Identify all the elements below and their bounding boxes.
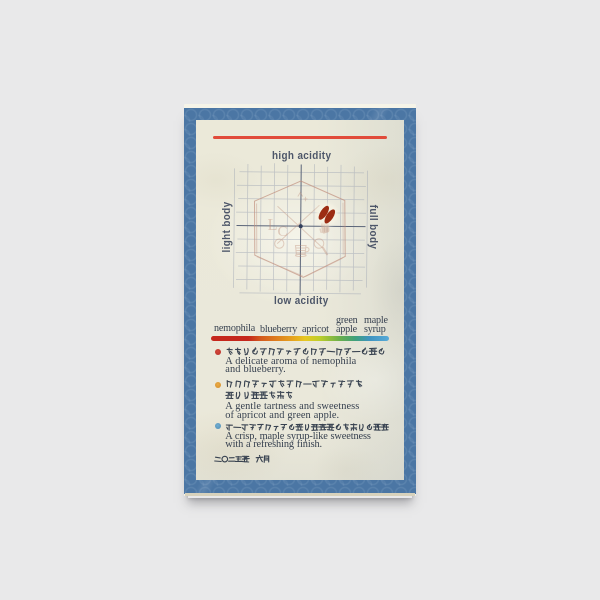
svg-text:C: C <box>278 224 288 240</box>
svg-text:L: L <box>268 215 278 234</box>
